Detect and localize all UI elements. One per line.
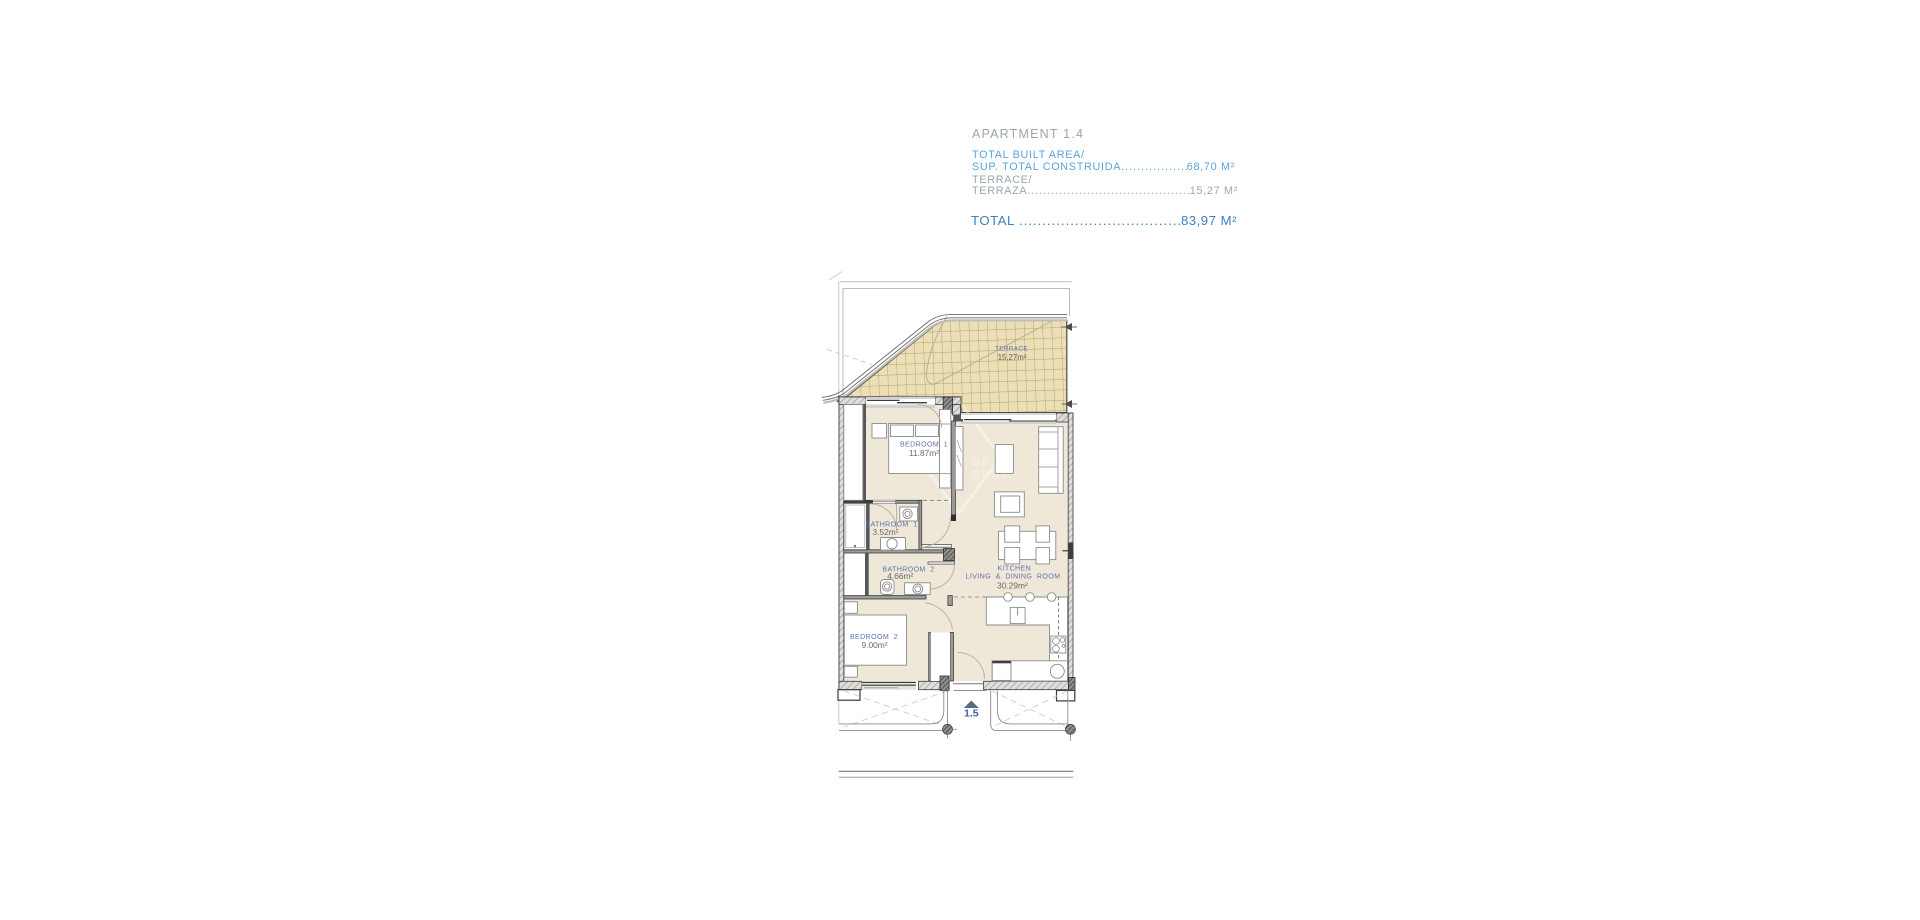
svg-text:30.29m²: 30.29m² [997,581,1028,591]
svg-text:9.00m²: 9.00m² [861,640,887,650]
svg-text:1.5: 1.5 [964,708,979,720]
svg-text:4.66m²: 4.66m² [887,571,913,581]
svg-text:15.27m²: 15.27m² [998,353,1027,362]
svg-text:3.52m²: 3.52m² [872,527,898,537]
svg-text:KITCHEN: KITCHEN [998,565,1032,573]
svg-text:11.87m²: 11.87m² [909,448,939,458]
svg-text:LIVING & DINING ROOM: LIVING & DINING ROOM [966,573,1061,581]
svg-text:TERRACE: TERRACE [995,346,1028,353]
